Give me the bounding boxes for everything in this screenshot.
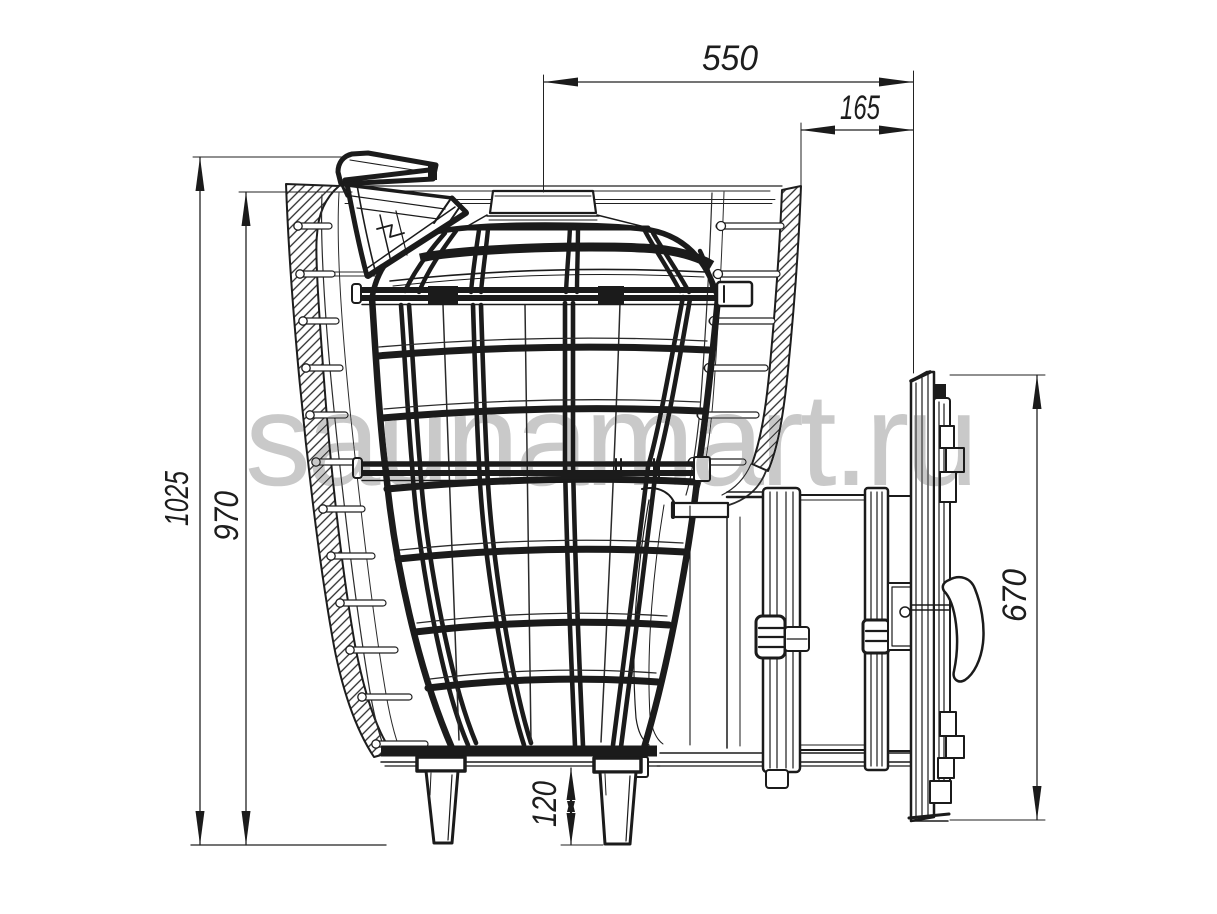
svg-text:670: 670 — [996, 569, 1034, 622]
svg-text:550: 550 — [702, 39, 759, 78]
svg-text:165: 165 — [840, 89, 880, 127]
svg-text:saunamart.ru: saunamart.ru — [245, 366, 975, 513]
svg-text:1025: 1025 — [158, 471, 195, 526]
svg-text:970: 970 — [208, 491, 246, 541]
svg-text:120: 120 — [526, 781, 564, 827]
